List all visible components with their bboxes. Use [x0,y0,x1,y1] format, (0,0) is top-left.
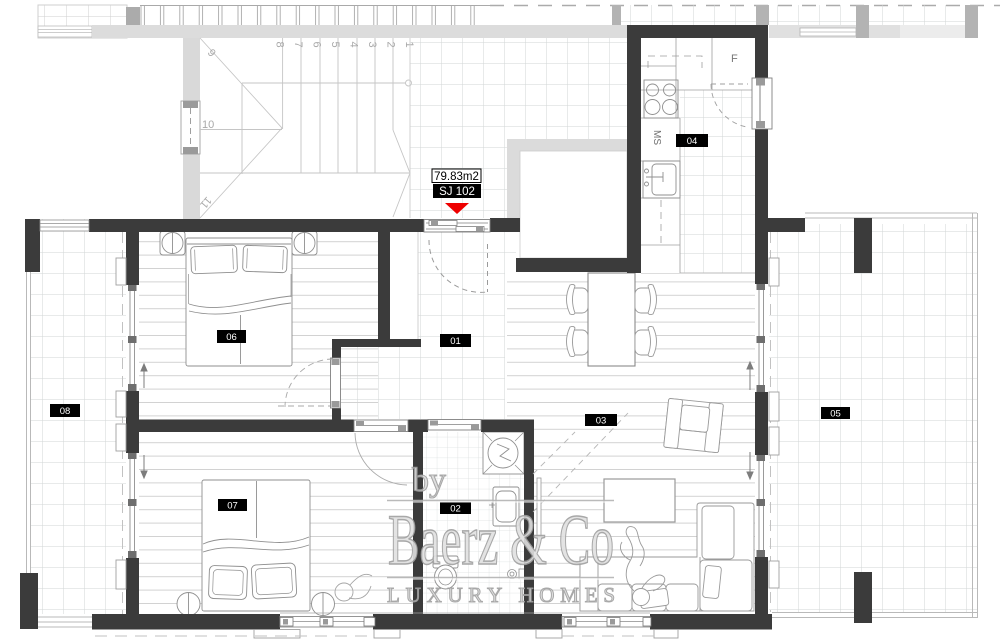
svg-text:79.83m2: 79.83m2 [434,171,479,183]
svg-text:by: by [412,462,446,499]
svg-text:10: 10 [202,119,214,131]
svg-text:F: F [731,53,738,65]
svg-text:MS: MS [651,130,662,145]
svg-text:05: 05 [830,409,841,420]
svg-text:8: 8 [274,42,286,48]
svg-text:01: 01 [450,336,461,347]
svg-text:2: 2 [385,42,397,48]
svg-text:7: 7 [292,42,304,48]
svg-text:Baerz & Co: Baerz & Co [388,500,614,580]
svg-text:4: 4 [348,42,360,48]
svg-text:SJ 102: SJ 102 [439,186,475,198]
svg-text:3: 3 [366,42,378,48]
svg-text:07: 07 [227,501,238,512]
svg-text:6: 6 [311,42,323,48]
svg-text:04: 04 [687,136,698,147]
svg-text:03: 03 [596,416,607,427]
svg-text:06: 06 [226,332,237,343]
svg-text:08: 08 [60,406,71,417]
svg-text:5: 5 [329,42,341,48]
